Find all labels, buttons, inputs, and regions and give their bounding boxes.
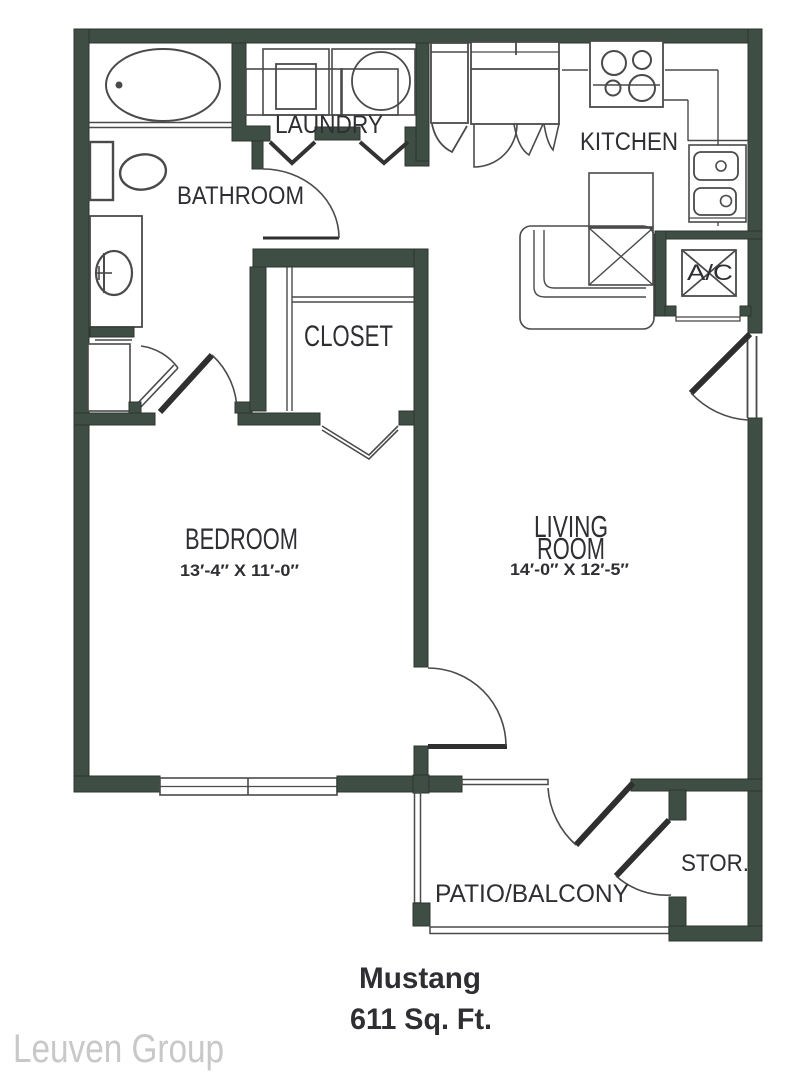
svg-text:14′-0″ X 12′-5″: 14′-0″ X 12′-5″ [510, 560, 629, 579]
svg-text:STOR.: STOR. [681, 850, 749, 877]
svg-text:A/C: A/C [687, 260, 733, 285]
svg-text:611 Sq. Ft.: 611 Sq. Ft. [350, 1003, 492, 1036]
svg-text:LAUNDRY: LAUNDRY [275, 111, 383, 139]
svg-text:PATIO/BALCONY: PATIO/BALCONY [435, 880, 629, 908]
svg-text:Leuven Group: Leuven Group [13, 1027, 224, 1071]
svg-text:Mustang: Mustang [359, 962, 481, 995]
svg-text:BEDROOM: BEDROOM [185, 523, 298, 556]
svg-text:BATHROOM: BATHROOM [177, 182, 304, 210]
svg-text:CLOSET: CLOSET [304, 320, 393, 353]
svg-text:KITCHEN: KITCHEN [580, 128, 678, 156]
svg-text:13′-4″ X 11′-0″: 13′-4″ X 11′-0″ [180, 561, 299, 580]
